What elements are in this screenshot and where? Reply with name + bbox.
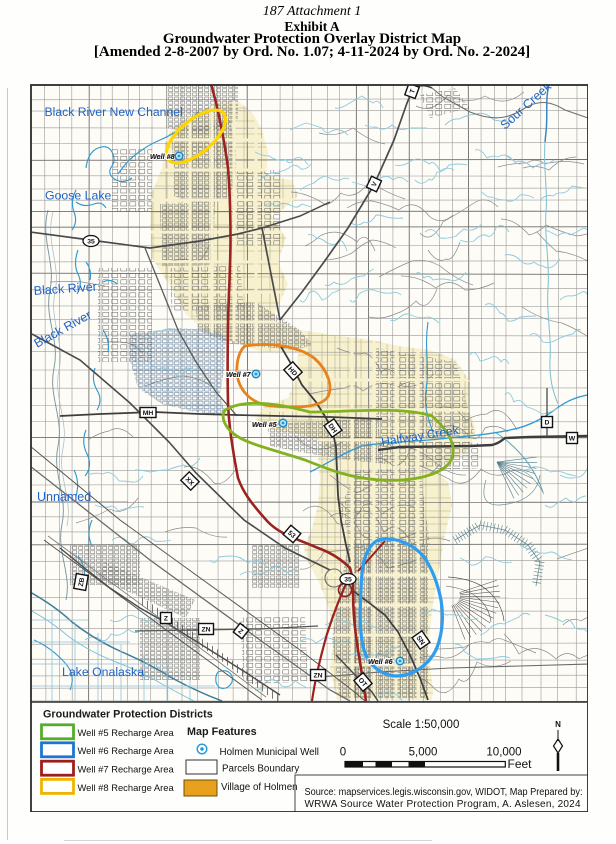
- svg-text:Well #5 Recharge Area: Well #5 Recharge Area: [78, 727, 175, 738]
- svg-text:Well #7 Recharge Area: Well #7 Recharge Area: [78, 764, 175, 775]
- svg-text:W: W: [569, 436, 576, 443]
- svg-text:Village of Holmen: Village of Holmen: [221, 782, 298, 793]
- svg-text:Well #5: Well #5: [252, 420, 278, 429]
- svg-text:35: 35: [87, 239, 95, 246]
- svg-text:Z: Z: [164, 616, 168, 623]
- svg-text:Well #8 Recharge Area: Well #8 Recharge Area: [78, 782, 175, 793]
- svg-text:5,000: 5,000: [409, 747, 438, 759]
- svg-text:ZN: ZN: [313, 673, 322, 680]
- svg-text:Feet: Feet: [508, 757, 533, 771]
- svg-text:N: N: [555, 720, 561, 729]
- svg-text:Lake Onalaska: Lake Onalaska: [62, 665, 144, 679]
- svg-text:MH: MH: [143, 410, 154, 417]
- svg-text:Black River New Channel: Black River New Channel: [45, 105, 183, 119]
- svg-text:35: 35: [344, 577, 352, 584]
- svg-text:Well #7: Well #7: [226, 370, 252, 379]
- svg-text:Map Features: Map Features: [187, 726, 257, 738]
- svg-text:0: 0: [340, 747, 346, 759]
- svg-text:Goose Lake: Goose Lake: [45, 189, 111, 203]
- svg-text:ZN: ZN: [201, 627, 210, 634]
- svg-text:Unnamed: Unnamed: [37, 490, 91, 504]
- svg-text:Well #6 Recharge Area: Well #6 Recharge Area: [78, 745, 175, 756]
- svg-text:D: D: [545, 420, 550, 427]
- svg-text:Well #6: Well #6: [368, 657, 394, 666]
- svg-text:Scale 1:50,000: Scale 1:50,000: [383, 719, 460, 731]
- svg-text:WRWA Source Water Protection P: WRWA Source Water Protection Program, A.…: [305, 799, 581, 810]
- svg-text:Parcels Boundary: Parcels Boundary: [222, 764, 299, 775]
- svg-text:Groundwater Protection Distric: Groundwater Protection Districts: [43, 709, 213, 721]
- svg-text:Holmen Municipal Well: Holmen Municipal Well: [220, 747, 319, 758]
- svg-text:Source: mapservices.legis.wisc: Source: mapservices.legis.wisconsin.gov,…: [305, 787, 583, 798]
- svg-text:Well #8: Well #8: [150, 152, 175, 161]
